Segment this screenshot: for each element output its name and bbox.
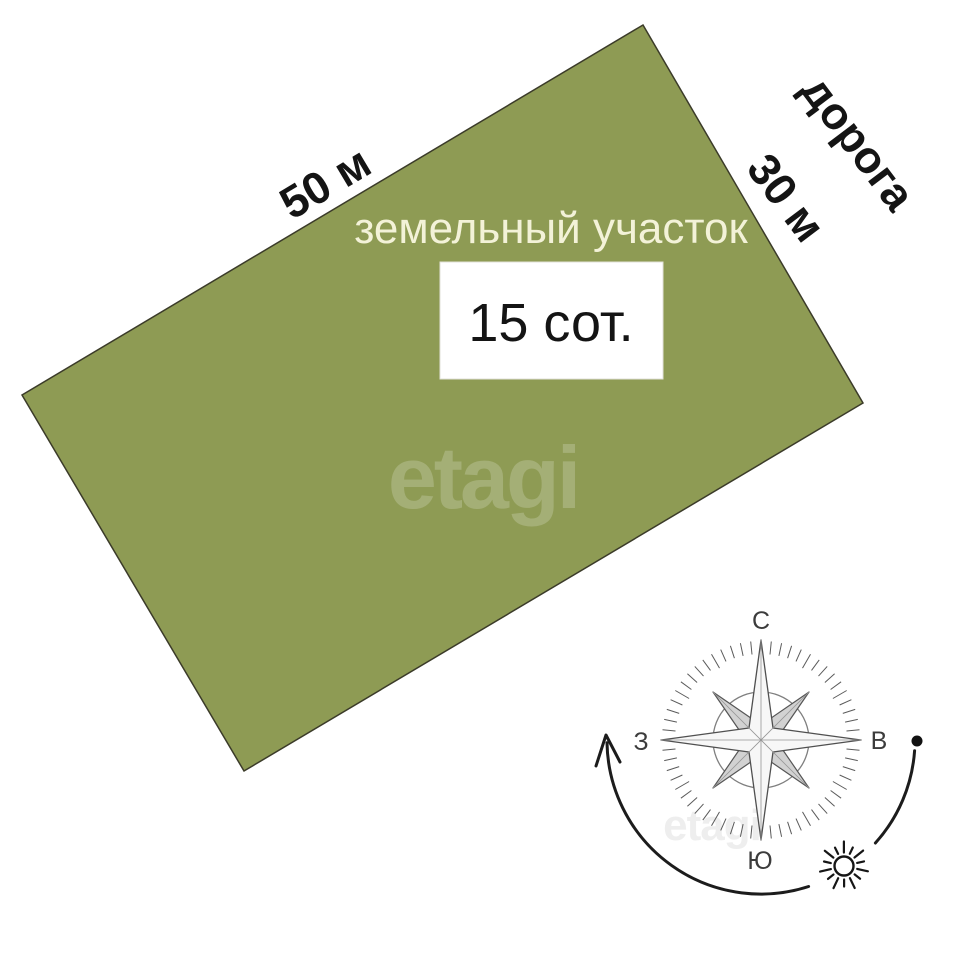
compass-tick [721,650,726,662]
compass-tick [740,643,743,656]
compass-north-label: С [752,607,770,635]
sun-ray [835,848,838,854]
compass-south-label: Ю [747,847,772,875]
sun-ray [825,851,834,858]
compass-tick [671,700,683,705]
compass-tick [667,709,679,713]
plot-title: земельный участок [354,204,748,253]
compass-tick [703,660,711,671]
area-value: 15 сот. [468,293,633,353]
compass-tick [663,730,676,731]
compass-tick [803,654,811,668]
compass-tick [843,709,855,713]
compass-tick [770,826,771,839]
compass-tick [779,643,782,656]
sun-ray [824,862,831,864]
area-box: 15 сот. [440,262,663,379]
compass-tick [845,719,858,722]
sun-ray [857,869,868,871]
compass-tick [831,682,842,690]
compass-tick [831,791,842,799]
sun-ray [820,869,831,872]
compass-tick [730,646,734,658]
compass-tick [675,691,689,699]
sunrise-east-dot [912,736,923,747]
sun-icon [820,842,868,889]
compass-tick [812,660,820,671]
compass-tick [840,700,852,705]
compass-tick [833,691,847,699]
compass-tick [712,654,720,668]
compass-tick [751,642,752,655]
sun-ray [850,848,853,854]
compass-tick [819,666,828,676]
compass-tick [847,749,860,750]
brand-watermark: etagi [388,428,578,527]
sun-ray [857,861,864,863]
compass-east-label: В [871,727,888,755]
compass-tick [663,749,676,750]
compass-tick [687,674,697,683]
compass-tick [675,782,689,790]
compass-tick [788,822,792,834]
compass-tick [825,798,835,807]
compass-tick [796,650,801,662]
land-plot-diagram: etagi земельный участок 15 сот. 50 м 30 … [0,0,960,960]
sun-path-arc-east [875,751,914,843]
land-plot-shape [22,25,863,771]
sun-ray [850,878,855,888]
sun-ray [855,851,864,858]
compass-tick [845,758,858,761]
compass-tick [681,682,692,690]
compass-tick [825,674,835,683]
compass-tick [667,767,679,771]
compass-tick [819,804,828,814]
sun-disc [835,857,854,876]
sun-ray [834,878,839,888]
compass-tick [779,824,782,837]
compass-tick [812,810,820,821]
compass-tick [681,791,692,799]
sun-ray [828,875,834,879]
compass-tick [695,666,704,676]
sun-ray [855,874,861,878]
compass-tick [664,719,677,722]
compass-west-label: З [633,728,648,756]
compass-tick [671,775,683,780]
compass-tick [664,758,677,761]
compass-tick [796,819,801,831]
compass-tick [770,642,771,655]
compass-tick [843,767,855,771]
compass-tick [840,775,852,780]
compass-tick [803,812,811,826]
compass-tick [788,646,792,658]
compass-tick [833,782,847,790]
compass-tick [847,730,860,731]
